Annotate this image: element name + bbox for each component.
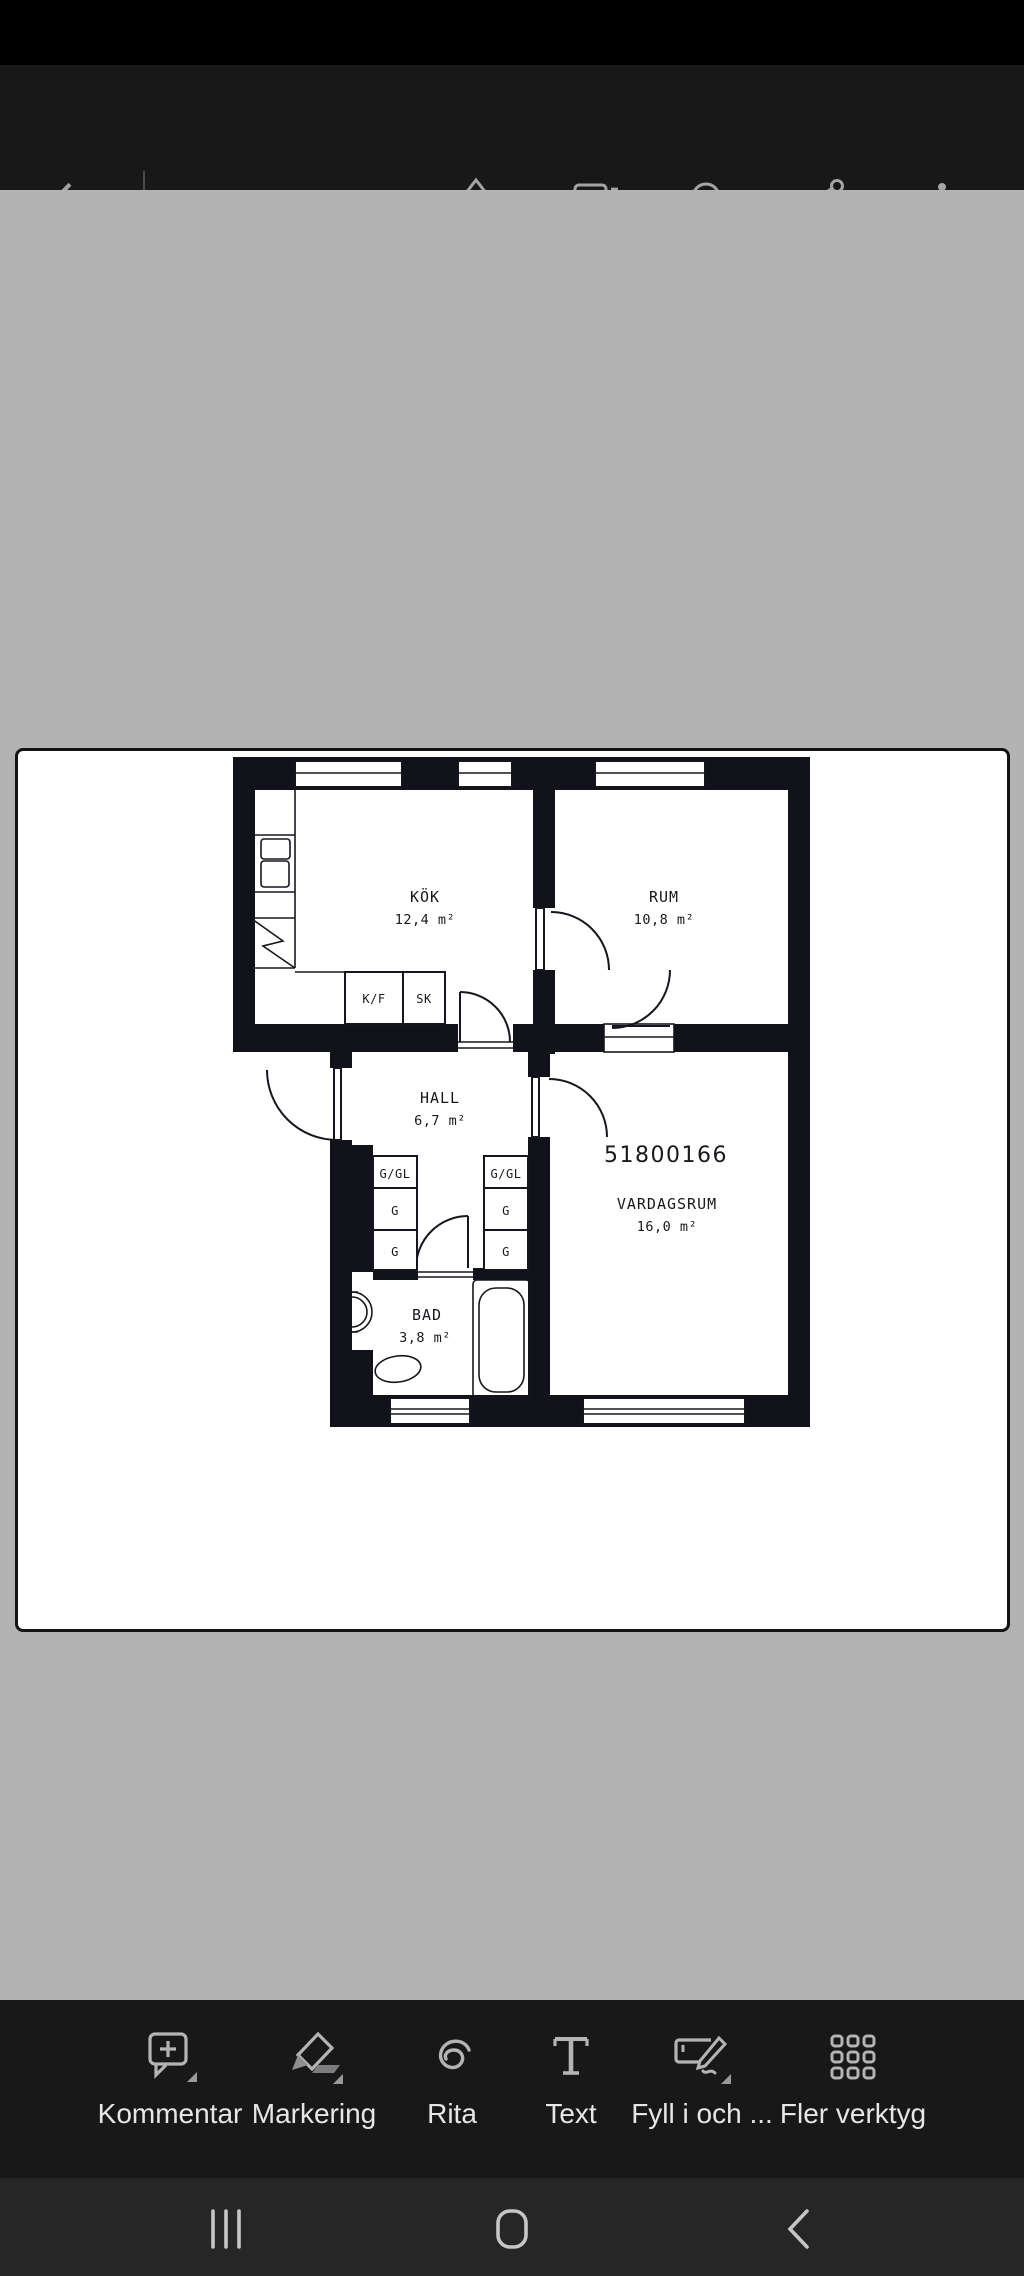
- closet-label-left-bot: G: [391, 1245, 399, 1259]
- nav-back-button[interactable]: [755, 2202, 845, 2258]
- home-button[interactable]: [467, 2202, 557, 2258]
- top-toolbar: [0, 65, 1024, 190]
- navigation-bar: [0, 2178, 1024, 2276]
- floor-plan: KÖK 12,4 m² RUM 10,8 m² HALL 6,7 m² 5180…: [0, 748, 1024, 1442]
- toilet-icon: [373, 1353, 422, 1385]
- room-label-bathroom: BAD: [412, 1306, 442, 1324]
- tool-label: Text: [545, 2098, 596, 2130]
- closet-label-right-bot: G: [502, 1245, 510, 1259]
- room-area-bathroom: 3,8 m²: [399, 1330, 451, 1346]
- status-bar: [0, 0, 1024, 65]
- door-symbols: [267, 908, 674, 1280]
- more-tools-grid-icon: [824, 2000, 882, 2086]
- room-label-hall: HALL: [420, 1089, 460, 1107]
- tool-label: Rita: [427, 2098, 477, 2130]
- fill-and-sign-icon: [671, 2000, 733, 2086]
- text-tool-icon: [542, 2000, 600, 2086]
- recents-icon: [203, 2206, 249, 2255]
- cabinet-label-sk: SK: [416, 992, 432, 1006]
- window-symbols: [295, 761, 745, 1424]
- closet-label-left-top: G/GL: [380, 1167, 411, 1181]
- room-area-living-room: 16,0 m²: [637, 1219, 697, 1235]
- room-label-room: RUM: [649, 888, 679, 906]
- kitchen-counter: [252, 790, 445, 1024]
- room-label-kitchen: KÖK: [410, 887, 440, 906]
- plan-number: 51800166: [604, 1143, 728, 1168]
- phone-screen: KÖK 12,4 m² RUM 10,8 m² HALL 6,7 m² 5180…: [0, 0, 1024, 2276]
- comment-add-icon: [141, 2000, 199, 2086]
- room-label-living-room: VARDAGSRUM: [617, 1195, 717, 1213]
- cabinet-label-kf: K/F: [362, 992, 385, 1006]
- bathtub-icon: [473, 1280, 530, 1398]
- nav-back-icon: [777, 2206, 823, 2255]
- bottom-toolbar: Kommentar Markering Rita: [0, 2000, 1024, 2178]
- draw-scribble-icon: [423, 2000, 481, 2086]
- tool-label: Fyll i och ...: [631, 2098, 773, 2130]
- recents-button[interactable]: [181, 2202, 271, 2258]
- tool-label: Markering: [252, 2098, 376, 2130]
- closet-label-right-mid: G: [502, 1204, 510, 1218]
- home-icon: [489, 2206, 535, 2255]
- tool-label: Fler verktyg: [780, 2098, 926, 2130]
- closet-label-left-mid: G: [391, 1204, 399, 1218]
- tool-label: Kommentar: [98, 2098, 243, 2130]
- tool-fler-verktyg[interactable]: Fler verktyg: [763, 2000, 943, 2178]
- room-area-room: 10,8 m²: [634, 912, 694, 928]
- closet-label-right-top: G/GL: [491, 1167, 522, 1181]
- room-area-hall: 6,7 m²: [414, 1113, 466, 1129]
- highlighter-icon: [285, 2000, 343, 2086]
- room-area-kitchen: 12,4 m²: [395, 912, 455, 928]
